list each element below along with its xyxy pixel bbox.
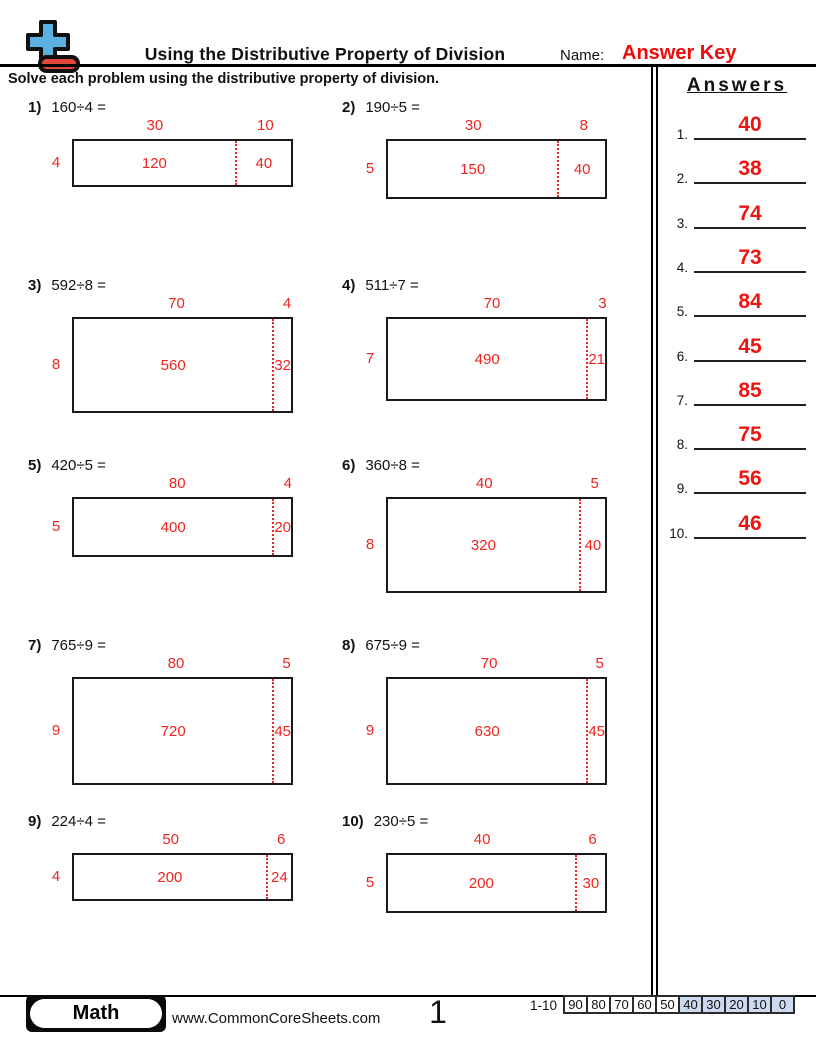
divisor-label: 7 xyxy=(360,350,380,367)
answer-number: 5. xyxy=(658,304,688,319)
area-model-left-part: 200 xyxy=(388,855,577,911)
ones-product-value: 30 xyxy=(583,875,600,892)
answer-blank-line: 46 xyxy=(694,505,806,539)
area-model-right-part: 30 xyxy=(577,855,605,911)
ones-product-value: 24 xyxy=(271,869,288,886)
answer-value: 56 xyxy=(694,467,806,491)
answer-item: 2. 38 xyxy=(658,152,816,184)
problem-expression: 675÷9 = xyxy=(365,637,420,654)
ones-product-value: 40 xyxy=(574,161,591,178)
area-model-left-part: 150 xyxy=(388,141,559,197)
answer-value: 85 xyxy=(694,379,806,403)
score-table: 9080706050403020100 xyxy=(565,995,795,1014)
score-cell: 70 xyxy=(609,995,634,1014)
answer-number: 6. xyxy=(658,349,688,364)
answer-number: 7. xyxy=(658,393,688,408)
area-model-box: 490 21 xyxy=(386,317,607,401)
problem-header: 3)592÷8 = xyxy=(28,277,106,294)
tens-product-value: 630 xyxy=(475,723,500,740)
problem-number: 2) xyxy=(342,99,355,116)
tens-product-value: 400 xyxy=(161,519,186,536)
area-model-box: 150 40 xyxy=(386,139,607,199)
website-text: www.CommonCoreSheets.com xyxy=(172,1010,380,1027)
divisor-label: 5 xyxy=(360,874,380,891)
worksheet-page: Using the Distributive Property of Divis… xyxy=(0,0,816,1056)
answer-number: 1. xyxy=(658,127,688,142)
score-range-label: 1-10 xyxy=(530,998,557,1013)
quotient-ones-label: 5 xyxy=(280,655,293,672)
area-model-box: 120 40 xyxy=(72,139,293,187)
tens-product-value: 490 xyxy=(475,351,500,368)
quotient-labels-row: 70 5 xyxy=(386,655,607,675)
score-cell: 50 xyxy=(655,995,680,1014)
answer-blank-line: 75 xyxy=(694,416,806,450)
problem: 6)360÷8 = 40 5 320 40 8 xyxy=(336,457,636,629)
area-model-left-part: 200 xyxy=(74,855,268,899)
area-model-right-part: 40 xyxy=(559,141,605,197)
problem: 3)592÷8 = 70 4 560 32 8 xyxy=(22,277,322,449)
divisor-label: 4 xyxy=(46,154,66,171)
ones-product-value: 21 xyxy=(588,351,605,368)
quotient-labels-row: 30 8 xyxy=(386,117,607,137)
area-model-left-part: 560 xyxy=(74,319,274,411)
divisor-label: 5 xyxy=(46,518,66,535)
answer-blank-line: 74 xyxy=(694,195,806,229)
plus-minus-logo-icon xyxy=(24,20,94,76)
score-cell: 40 xyxy=(678,995,703,1014)
answer-number: 9. xyxy=(658,481,688,496)
answer-number: 2. xyxy=(658,171,688,186)
problem-number: 10) xyxy=(342,813,364,830)
problem-header: 7)765÷9 = xyxy=(28,637,106,654)
answer-value: 38 xyxy=(694,157,806,181)
problem-expression: 420÷5 = xyxy=(51,457,106,474)
answer-number: 3. xyxy=(658,216,688,231)
quotient-ones-label: 5 xyxy=(592,655,607,672)
quotient-tens-label: 70 xyxy=(386,655,592,672)
area-model-left-part: 720 xyxy=(74,679,274,783)
problem-header: 5)420÷5 = xyxy=(28,457,106,474)
quotient-labels-row: 40 5 xyxy=(386,475,607,495)
answers-title: Answers xyxy=(658,75,816,97)
answer-blank-line: 73 xyxy=(694,239,806,273)
tens-product-value: 560 xyxy=(161,357,186,374)
score-cell: 10 xyxy=(747,995,772,1014)
quotient-labels-row: 40 6 xyxy=(386,831,607,851)
problem-number: 5) xyxy=(28,457,41,474)
problem-header: 1)160÷4 = xyxy=(28,99,106,116)
tens-product-value: 320 xyxy=(471,537,496,554)
answer-number: 10. xyxy=(658,526,688,541)
problem: 9)224÷4 = 50 6 200 24 4 xyxy=(22,813,322,985)
subject-badge-label: Math xyxy=(30,999,162,1028)
area-model-right-part: 32 xyxy=(274,319,291,411)
problem-header: 10)230÷5 = xyxy=(342,813,428,830)
page-title: Using the Distributive Property of Divis… xyxy=(100,44,550,65)
quotient-tens-label: 70 xyxy=(386,295,598,312)
area-model-box: 630 45 xyxy=(386,677,607,785)
quotient-labels-row: 50 6 xyxy=(72,831,293,851)
answer-item: 1. 40 xyxy=(658,108,816,140)
quotient-ones-label: 5 xyxy=(582,475,607,492)
quotient-ones-label: 8 xyxy=(560,117,607,134)
answer-value: 46 xyxy=(694,512,806,536)
answer-key-value: Answer Key xyxy=(622,42,737,65)
answer-blank-line: 45 xyxy=(694,328,806,362)
answer-item: 6. 45 xyxy=(658,330,816,362)
ones-product-value: 40 xyxy=(256,155,273,172)
score-cell: 80 xyxy=(586,995,611,1014)
quotient-ones-label: 3 xyxy=(598,295,607,312)
area-model-left-part: 400 xyxy=(74,499,274,555)
quotient-ones-label: 4 xyxy=(281,295,293,312)
score-cell: 30 xyxy=(701,995,726,1014)
tens-product-value: 200 xyxy=(157,869,182,886)
answer-blank-line: 85 xyxy=(694,372,806,406)
ones-product-value: 45 xyxy=(588,723,605,740)
problem-expression: 511÷7 = xyxy=(365,277,418,294)
answer-item: 9. 56 xyxy=(658,462,816,494)
quotient-ones-label: 6 xyxy=(578,831,607,848)
score-cell: 20 xyxy=(724,995,749,1014)
answer-value: 73 xyxy=(694,246,806,270)
answer-blank-line: 56 xyxy=(694,460,806,494)
page-number: 1 xyxy=(416,994,460,1031)
area-model-box: 560 32 xyxy=(72,317,293,413)
subject-badge: Math xyxy=(26,995,166,1032)
quotient-tens-label: 80 xyxy=(72,655,280,672)
divisor-label: 9 xyxy=(46,722,66,739)
area-model-right-part: 40 xyxy=(581,499,605,591)
problem-number: 4) xyxy=(342,277,355,294)
answer-item: 4. 73 xyxy=(658,241,816,273)
answer-value: 40 xyxy=(694,113,806,137)
problem-number: 7) xyxy=(28,637,41,654)
problem-header: 6)360÷8 = xyxy=(342,457,420,474)
area-model-right-part: 20 xyxy=(274,499,291,555)
divisor-label: 9 xyxy=(360,722,380,739)
score-cell: 90 xyxy=(563,995,588,1014)
answer-blank-line: 40 xyxy=(694,106,806,140)
tens-product-value: 200 xyxy=(469,875,494,892)
quotient-tens-label: 40 xyxy=(386,475,582,492)
problem-number: 9) xyxy=(28,813,41,830)
problem-expression: 190÷5 = xyxy=(365,99,420,116)
area-model-left-part: 630 xyxy=(388,679,588,783)
tens-product-value: 720 xyxy=(161,723,186,740)
divisor-label: 8 xyxy=(46,356,66,373)
problem-number: 3) xyxy=(28,277,41,294)
answer-number: 4. xyxy=(658,260,688,275)
problem-number: 1) xyxy=(28,99,41,116)
instructions-text: Solve each problem using the distributiv… xyxy=(8,71,439,87)
problem-expression: 224÷4 = xyxy=(51,813,106,830)
area-model-right-part: 40 xyxy=(237,141,291,185)
problem: 1)160÷4 = 30 10 120 40 4 xyxy=(22,99,322,271)
problem-number: 8) xyxy=(342,637,355,654)
ones-product-value: 20 xyxy=(274,519,291,536)
ones-product-value: 40 xyxy=(585,537,602,554)
problem: 5)420÷5 = 80 4 400 20 5 xyxy=(22,457,322,629)
problem-expression: 592÷8 = xyxy=(51,277,106,294)
quotient-tens-label: 50 xyxy=(72,831,269,848)
divisor-label: 8 xyxy=(360,536,380,553)
quotient-tens-label: 80 xyxy=(72,475,282,492)
area-model-box: 200 24 xyxy=(72,853,293,901)
answer-number: 8. xyxy=(658,437,688,452)
answer-blank-line: 38 xyxy=(694,150,806,184)
quotient-tens-label: 40 xyxy=(386,831,578,848)
problem-expression: 360÷8 = xyxy=(365,457,420,474)
answer-value: 84 xyxy=(694,290,806,314)
answer-item: 10. 46 xyxy=(658,507,816,539)
area-model-box: 320 40 xyxy=(386,497,607,593)
quotient-labels-row: 80 4 xyxy=(72,475,293,495)
problem: 7)765÷9 = 80 5 720 45 9 xyxy=(22,637,322,809)
problem-expression: 765÷9 = xyxy=(51,637,106,654)
quotient-ones-label: 10 xyxy=(238,117,293,134)
answer-value: 45 xyxy=(694,335,806,359)
answer-item: 5. 84 xyxy=(658,285,816,317)
area-model-box: 720 45 xyxy=(72,677,293,785)
answer-value: 74 xyxy=(694,202,806,226)
problem-header: 9)224÷4 = xyxy=(28,813,106,830)
problem: 4)511÷7 = 70 3 490 21 7 xyxy=(336,277,636,449)
answer-blank-line: 84 xyxy=(694,283,806,317)
area-model-left-part: 320 xyxy=(388,499,581,591)
ones-product-value: 45 xyxy=(274,723,291,740)
quotient-labels-row: 30 10 xyxy=(72,117,293,137)
problem: 10)230÷5 = 40 6 200 30 5 xyxy=(336,813,636,985)
tens-product-value: 120 xyxy=(142,155,167,172)
area-model-right-part: 21 xyxy=(588,319,605,399)
answers-panel: Answers 1. 40 2. 38 3. 74 4. 73 5. 84 6.… xyxy=(658,67,816,995)
area-model-right-part: 45 xyxy=(274,679,291,783)
answer-item: 7. 85 xyxy=(658,374,816,406)
quotient-ones-label: 6 xyxy=(269,831,293,848)
quotient-labels-row: 80 5 xyxy=(72,655,293,675)
area-model-left-part: 120 xyxy=(74,141,237,185)
score-cell: 0 xyxy=(770,995,795,1014)
quotient-labels-row: 70 3 xyxy=(386,295,607,315)
ones-product-value: 32 xyxy=(274,357,291,374)
problem-expression: 230÷5 = xyxy=(374,813,429,830)
area-model-box: 200 30 xyxy=(386,853,607,913)
quotient-labels-row: 70 4 xyxy=(72,295,293,315)
divisor-label: 5 xyxy=(360,160,380,177)
problem-header: 8)675÷9 = xyxy=(342,637,420,654)
answer-value: 75 xyxy=(694,423,806,447)
quotient-tens-label: 30 xyxy=(72,117,238,134)
answer-item: 3. 74 xyxy=(658,197,816,229)
divisor-label: 4 xyxy=(46,868,66,885)
area-model-left-part: 490 xyxy=(388,319,588,399)
area-model-right-part: 24 xyxy=(268,855,291,899)
tens-product-value: 150 xyxy=(460,161,485,178)
problem-expression: 160÷4 = xyxy=(51,99,106,116)
quotient-tens-label: 30 xyxy=(386,117,560,134)
quotient-tens-label: 70 xyxy=(72,295,281,312)
name-label: Name: xyxy=(560,47,604,64)
problem: 2)190÷5 = 30 8 150 40 5 xyxy=(336,99,636,271)
area-model-right-part: 45 xyxy=(588,679,605,783)
problem-number: 6) xyxy=(342,457,355,474)
score-cell: 60 xyxy=(632,995,657,1014)
problem: 8)675÷9 = 70 5 630 45 9 xyxy=(336,637,636,809)
problem-header: 4)511÷7 = xyxy=(342,277,419,294)
answer-item: 8. 75 xyxy=(658,418,816,450)
area-model-box: 400 20 xyxy=(72,497,293,557)
problem-header: 2)190÷5 = xyxy=(342,99,420,116)
answers-divider xyxy=(651,66,658,995)
quotient-ones-label: 4 xyxy=(282,475,293,492)
